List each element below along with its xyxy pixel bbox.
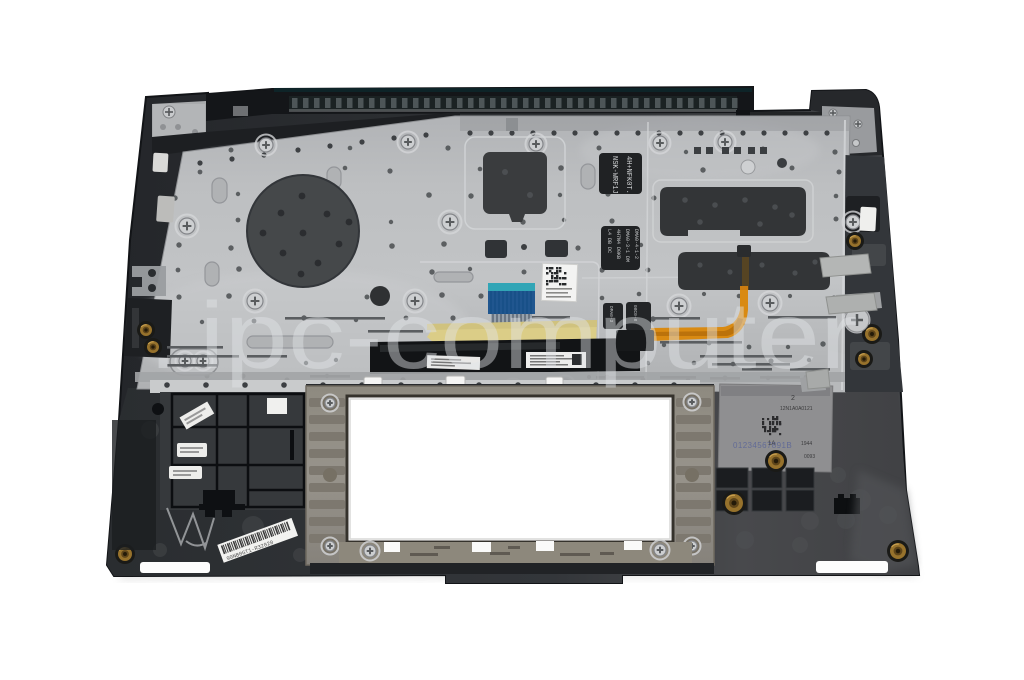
svg-text:0093: 0093 (804, 454, 815, 460)
svg-text:DMA0-3-1 DM: DMA0-3-1 DM (624, 229, 630, 262)
svg-text:4H7N4 D0KB: 4H7N4 D0KB (615, 229, 621, 259)
svg-text:ipc-computer: ipc-computer (199, 283, 858, 389)
svg-text:NSK-WRF1J: NSK-WRF1J (610, 156, 618, 194)
svg-text:1944: 1944 (801, 441, 812, 447)
svg-text:L4 DB DC: L4 DB DC (606, 229, 612, 253)
svg-text:4H+NFK0T.: 4H+NFK0T. (624, 156, 632, 194)
svg-text:DMA0-4-1-2: DMA0-4-1-2 (633, 229, 639, 259)
svg-text:2: 2 (791, 395, 795, 402)
svg-text:01234567891B: 01234567891B (733, 441, 792, 450)
svg-text:12N1A0A0121: 12N1A0A0121 (780, 406, 813, 412)
svg-text:.: . (150, 283, 176, 389)
